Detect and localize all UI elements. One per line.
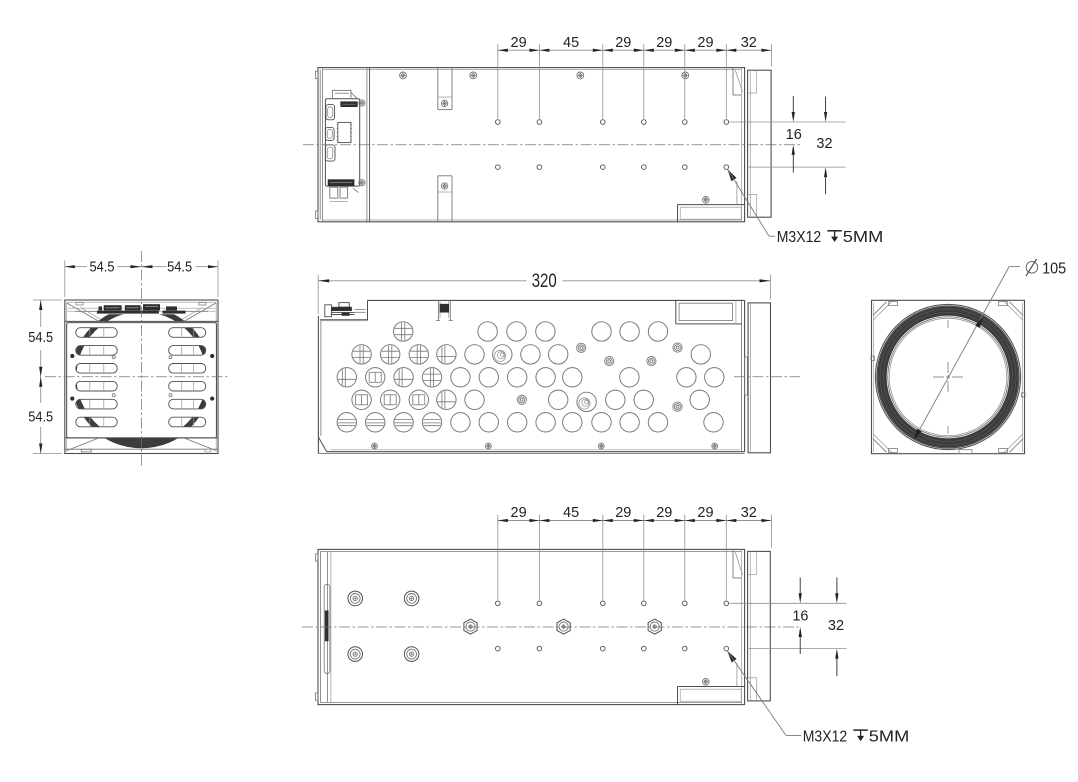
svg-text:29: 29 <box>615 35 631 51</box>
svg-text:32: 32 <box>828 618 844 634</box>
svg-text:16: 16 <box>792 609 808 625</box>
svg-text:320: 320 <box>532 271 557 292</box>
svg-text:5MM: 5MM <box>869 728 910 745</box>
svg-text:29: 29 <box>656 35 672 51</box>
svg-text:29: 29 <box>615 505 631 521</box>
svg-text:54.5: 54.5 <box>28 330 53 346</box>
svg-text:16: 16 <box>786 127 802 143</box>
svg-text:5MM: 5MM <box>843 229 884 246</box>
svg-text:29: 29 <box>511 35 527 51</box>
svg-text:54.5: 54.5 <box>167 260 192 276</box>
svg-text:32: 32 <box>816 136 832 152</box>
svg-text:29: 29 <box>697 35 713 51</box>
svg-text:54.5: 54.5 <box>28 409 53 425</box>
svg-text:54.5: 54.5 <box>90 260 115 276</box>
svg-text:45: 45 <box>563 505 579 521</box>
svg-text:M3X12: M3X12 <box>777 229 822 246</box>
svg-text:29: 29 <box>511 505 527 521</box>
svg-text:45: 45 <box>563 35 579 51</box>
svg-text:29: 29 <box>656 505 672 521</box>
svg-text:M3X12: M3X12 <box>803 728 848 745</box>
svg-text:32: 32 <box>741 35 757 51</box>
svg-text:105: 105 <box>1042 261 1066 278</box>
svg-text:32: 32 <box>741 505 757 521</box>
svg-text:29: 29 <box>697 505 713 521</box>
